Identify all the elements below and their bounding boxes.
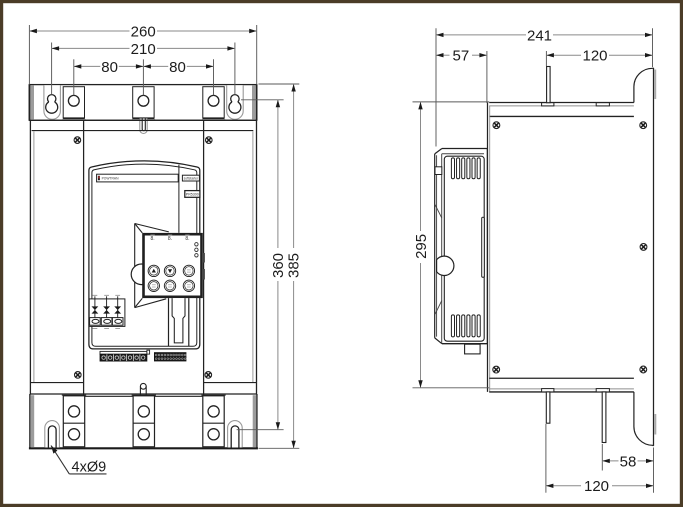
- svg-text:80: 80: [169, 59, 186, 76]
- svg-text:57: 57: [453, 48, 470, 65]
- svg-text:8.: 8.: [185, 236, 189, 242]
- svg-text:120: 120: [584, 478, 609, 495]
- svg-text:210: 210: [131, 41, 156, 58]
- svg-text:8.: 8.: [151, 236, 155, 242]
- svg-text:PR5300: PR5300: [186, 192, 199, 196]
- svg-text:385: 385: [285, 253, 302, 278]
- svg-text:POWTRAN: POWTRAN: [102, 177, 119, 181]
- svg-text:8.: 8.: [168, 236, 172, 242]
- svg-text:120: 120: [582, 48, 607, 65]
- svg-text:295: 295: [413, 234, 430, 259]
- svg-text:softstarter: softstarter: [184, 177, 200, 181]
- svg-text:58: 58: [620, 453, 637, 470]
- svg-text:241: 241: [527, 27, 552, 44]
- svg-text:4xØ9: 4xØ9: [72, 459, 107, 475]
- svg-text:80: 80: [101, 59, 118, 76]
- svg-text:260: 260: [131, 23, 156, 40]
